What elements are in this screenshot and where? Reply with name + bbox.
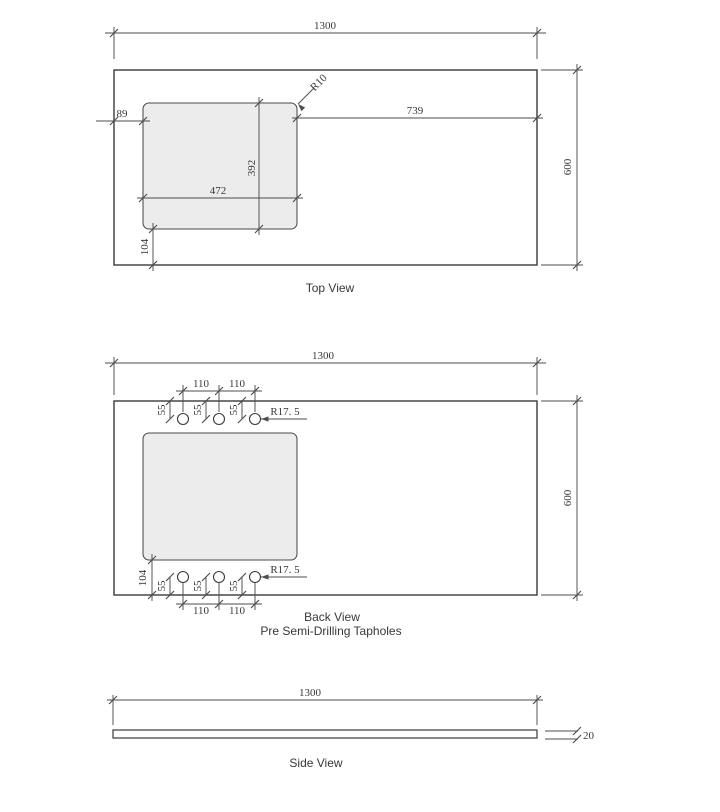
side-dim-thickness: 20 [545,727,595,743]
taphole [178,414,189,425]
back-dim-spacing-label: 110 [229,378,246,390]
back-dim-spacing-label: 110 [229,605,246,617]
taphole [214,414,225,425]
side-dim-thickness-label: 20 [583,730,595,742]
taphole [250,414,261,425]
top-dim-bottom-offset-label: 104 [139,238,151,255]
drawing-svg: 1300 600 89 739 R10 [0,0,720,812]
top-dim-overall-depth: 600 [541,64,583,271]
back-dim-bottom-offset-label: 104 [137,569,149,586]
top-view: 1300 600 89 739 R10 [96,20,583,295]
top-view-title: Top View [306,281,355,295]
back-view-sink-cutout [143,433,297,560]
back-dim-spacing-label: 110 [193,378,210,390]
back-dim-overall-depth: 600 [541,395,583,601]
top-dim-left-offset-label: 89 [117,108,129,120]
technical-drawing-sheet: 1300 600 89 739 R10 [0,0,720,812]
side-dim-overall-width: 1300 [107,687,543,725]
back-dim-overall-width: 1300 [105,350,546,395]
taphole [178,572,189,583]
back-dim-offset-label: 55 [228,580,240,592]
back-dim-radius-label: R17. 5 [270,406,300,418]
top-dim-depth-label: 600 [562,158,574,175]
back-view: 1300 600 110 110 55 [105,350,583,638]
top-dim-width-label: 1300 [314,20,337,32]
back-dim-offset-label: 55 [228,404,240,416]
top-dim-cutout-depth-label: 392 [246,160,258,177]
top-view-sink-cutout [143,103,297,229]
back-dim-spacing-label: 110 [193,605,210,617]
back-dim-offset-label: 55 [192,404,204,416]
side-view-plate-outline [113,730,537,738]
back-dim-radius-label: R17. 5 [270,564,300,576]
top-dim-cutout-width-label: 472 [210,185,227,197]
side-view-title: Side View [289,756,342,770]
back-view-title: Back View [304,610,360,624]
back-dim-offset-label: 55 [192,580,204,592]
side-view: 1300 20 Side View [107,687,595,770]
side-dim-width-label: 1300 [299,687,322,699]
back-dim-width-label: 1300 [312,350,335,362]
back-dim-offset-label: 55 [156,580,168,592]
back-dim-depth-label: 600 [562,489,574,506]
back-dim-offset-label: 55 [156,404,168,416]
taphole [250,572,261,583]
top-dim-right-offset-label: 739 [407,105,424,117]
top-dim-overall-width: 1300 [105,20,546,59]
back-view-subtitle: Pre Semi-Drilling Tapholes [260,624,401,638]
taphole [214,572,225,583]
